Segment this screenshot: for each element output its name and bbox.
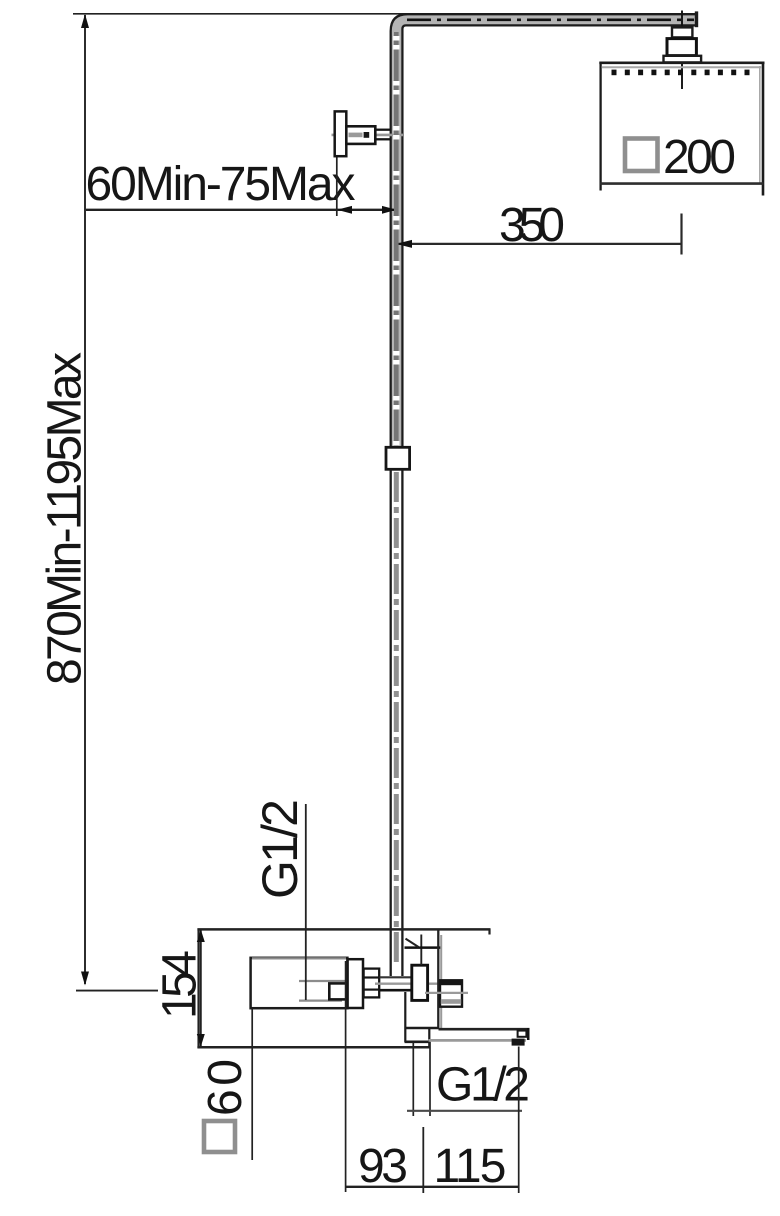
svg-text:60Min-75Max: 60Min-75Max xyxy=(86,158,356,211)
svg-text:154: 154 xyxy=(154,950,207,1019)
svg-text:G1/2: G1/2 xyxy=(436,1059,530,1112)
svg-text:870Min-1195Max: 870Min-1195Max xyxy=(39,352,92,685)
svg-text:60: 60 xyxy=(199,1059,252,1116)
svg-text:115: 115 xyxy=(434,1140,507,1193)
svg-text:350: 350 xyxy=(499,199,565,252)
svg-text:200: 200 xyxy=(663,131,736,184)
svg-text:93: 93 xyxy=(358,1140,408,1193)
svg-text:G1/2: G1/2 xyxy=(252,799,308,899)
